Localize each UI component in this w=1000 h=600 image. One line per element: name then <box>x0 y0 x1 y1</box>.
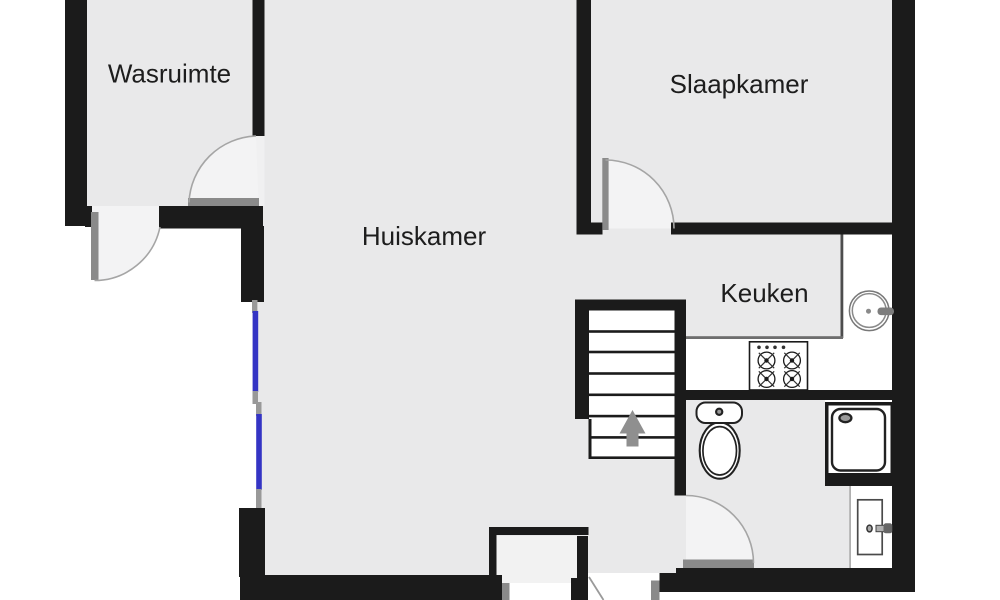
svg-text:Wasruimte: Wasruimte <box>108 59 231 89</box>
svg-text:Keuken: Keuken <box>720 278 808 308</box>
svg-text:Huiskamer: Huiskamer <box>362 221 487 251</box>
svg-text:Slaapkamer: Slaapkamer <box>670 69 809 99</box>
